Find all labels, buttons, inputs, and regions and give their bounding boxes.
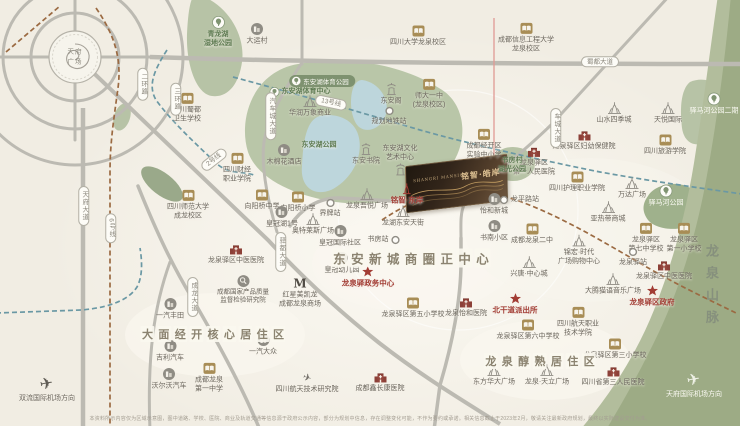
landmark-label: 龙泉驿政务中心 — [342, 279, 395, 289]
road-name-label: 天府大道 — [78, 186, 89, 226]
road-name-label: 三环路 — [170, 83, 181, 116]
landmark-tower-icon — [521, 255, 537, 268]
place-landmark: 吉利汽车 — [156, 339, 184, 362]
park-tree-icon — [291, 76, 301, 86]
landmark-tower-icon — [605, 272, 621, 285]
school-icon — [292, 191, 305, 203]
landmark-label: 铭智·东岸 — [391, 196, 424, 206]
plaza-landmark: 龙湖东安天街 — [382, 204, 424, 227]
landmark-label: 四川财经职业学院 — [223, 165, 251, 183]
hospital-landmark: 龙泉驿区中医医院 — [208, 243, 264, 265]
landmark-tower-icon — [600, 200, 616, 213]
landmark-label: 成都信息工程大学龙泉校区 — [498, 35, 554, 53]
landmark-label: 万达广场 — [618, 190, 646, 199]
plaza-landmark: 大腾猫语音乐广场 — [585, 272, 641, 295]
park-tree-icon — [708, 92, 721, 105]
landmark-label: 天悦国际 — [654, 115, 682, 124]
road-name-label: 车城大道 — [550, 108, 561, 148]
landmark-layer: 四川大学龙泉校区成都信息工程大学龙泉校区师大一中(龙泉校区)四川蜀都卫生学校四川… — [0, 0, 740, 426]
landmark-label: 师大一中(龙泉校区) — [413, 91, 446, 109]
pagoda-icon — [393, 163, 407, 176]
landmark-label: 四川航天职业技术学院 — [557, 319, 599, 337]
metro-station-landmark: 龙泉驿站 — [619, 247, 647, 267]
landmark-tower-icon — [395, 204, 411, 217]
landmark-label: 四川旅游学院 — [644, 147, 686, 156]
landmark-label: 东安书院 — [352, 156, 380, 165]
landmark-label: 龙泉驿区中医医院 — [208, 256, 264, 265]
school-icon — [412, 25, 425, 37]
landmark-label: 大运村 — [247, 36, 268, 45]
metro-station-landmark: 规划地铁站 — [372, 106, 407, 126]
pavilion-landmark: 东安书院 — [352, 142, 380, 165]
landmark-label: 一汽大众 — [249, 347, 277, 356]
school-icon — [678, 222, 691, 234]
landmark-label: 皇冠国际社区 — [319, 238, 361, 247]
m-icon: M — [293, 277, 306, 289]
plane-small-icon: ✈ — [301, 373, 312, 385]
park-tree-icon — [212, 16, 225, 29]
school-icon — [478, 128, 491, 140]
building-circle-icon — [251, 22, 264, 35]
building-circle-icon — [278, 143, 291, 156]
school-icon — [256, 189, 269, 201]
road-name-label: 二环路 — [137, 68, 148, 101]
building-circle-icon — [334, 224, 347, 237]
metro-station-icon — [628, 247, 638, 257]
landmark-label: 大腾猫语音乐广场 — [585, 286, 641, 295]
landmark-label: 龙泉怡和医院 — [445, 309, 487, 318]
plaza-landmark: 亚热带商城 — [591, 200, 626, 223]
landmark-label: 成都鑫长康医院 — [356, 384, 405, 393]
landmark-label: 驿马河公园 — [649, 198, 684, 207]
place-landmark: 大运村 — [247, 22, 268, 45]
landmark-label: 龙泉驿区第一小学校 — [667, 235, 702, 253]
location-map: SHANGRI MANSION 铭智·皓岸 四川大学龙泉校区成都信息工程大学龙泉… — [0, 0, 740, 426]
school-icon — [231, 152, 244, 164]
place-landmark: 书南小区 — [480, 219, 508, 242]
landmark-label: 龙泉驿区中医医院 — [636, 272, 692, 281]
landmark-label: 四川师范大学成龙校区 — [167, 202, 209, 220]
airport-landmark: ✈天府国际机场方向 — [666, 373, 722, 399]
landmark-label: 北干道派出所 — [493, 306, 538, 316]
park-pill-label: 东安湖体育公园 — [289, 75, 355, 87]
plaza-landmark: 天悦国际 — [654, 101, 682, 124]
landmark-tower-icon — [571, 234, 587, 247]
place-landmark: 木棉花酒店 — [267, 143, 302, 166]
plaza-landmark: 万达广场 — [618, 176, 646, 199]
road-name-label: 驿都大道 — [275, 232, 286, 272]
hospital-icon — [459, 296, 473, 308]
school-icon — [659, 134, 672, 146]
school-icon — [526, 223, 539, 235]
park-landmark: 驿马河公园二期 — [690, 92, 739, 115]
mall-landmark: M红星美凯龙成都龙泉商场 — [279, 277, 321, 308]
sports-park-landmark: 东安湖体育公园 — [289, 75, 355, 87]
place-landmark: 沃尔沃汽车 — [152, 367, 187, 390]
landmark-label: 一汽丰田 — [156, 311, 184, 320]
region-title: 大面经开核心居住区 — [139, 326, 286, 342]
park-landmark: 东安湖公园 — [302, 140, 337, 149]
pagoda-icon — [384, 82, 398, 95]
airport-landmark: ✈双流国际机场方向 — [19, 377, 75, 403]
landmark-label: 东方华大广场 — [473, 377, 515, 386]
landmark-label: 东安阁 — [381, 96, 402, 105]
metro-station-landmark: 界牌站 — [320, 198, 341, 218]
landmark-label: 红星美凯龙成都龙泉商场 — [279, 290, 321, 308]
landmark-label: 龙泉驿站 — [619, 258, 647, 267]
metro-station-landmark: 书房站 — [368, 235, 401, 245]
landmark-label: 锦宏·时代广场购物中心 — [558, 248, 600, 266]
landmark-tower-icon — [624, 176, 640, 189]
building-circle-icon — [276, 205, 289, 218]
metro-station-icon — [391, 235, 401, 245]
school-landmark: 四川师范大学成龙校区 — [167, 189, 209, 220]
landmark-label: 皇冠湖1号 — [266, 219, 298, 228]
project-block-landmark: 铭智·东岸 — [391, 183, 424, 206]
hospital-icon — [577, 129, 591, 141]
pagoda-icon — [359, 142, 373, 155]
institute-landmark: 成都国家产品质量监督检验研究院 — [217, 275, 269, 306]
road-name-label: 蜀都大道 — [581, 56, 619, 67]
school-landmark: 龙泉驿区第五小学校 — [382, 297, 445, 319]
metro-station-icon — [325, 198, 335, 208]
hospital-icon — [229, 243, 243, 255]
metro-station-landmark: 龙平路站 — [499, 195, 539, 205]
landmark-label: 成都龙泉第一中学 — [195, 375, 223, 393]
school-landmark: 成都龙泉第一中学 — [195, 362, 223, 393]
school-icon — [520, 22, 533, 34]
landmark-label: 四川护理职业学院 — [549, 184, 605, 193]
landmark-label: 龙泉驿区第六中学校 — [497, 332, 560, 341]
pavilion-landmark: 东安湖文化艺术中心 — [383, 144, 418, 176]
landmark-label: 木棉花酒店 — [267, 157, 302, 166]
building-circle-icon — [163, 367, 176, 380]
project-marker-icon — [401, 183, 413, 195]
landmark-label: 华润万象商业 — [289, 108, 331, 117]
landmark-label: 亚热带商城 — [591, 214, 626, 223]
landmark-label: 规划地铁站 — [372, 117, 407, 126]
road-name-label: 成龙大道 — [187, 277, 198, 317]
school-icon — [422, 78, 435, 90]
road-name-label: 汽车城大道 — [265, 92, 276, 140]
landmark-label: 龙泉驿区妇幼保健院 — [553, 142, 616, 151]
landmark-label: 书房站 — [368, 235, 389, 244]
school-landmark: 成都经开区实验中小学 — [467, 128, 502, 159]
landmark-label: 四川省第三人民医院 — [582, 378, 645, 387]
place-landmark: 皇冠湖1号 — [266, 205, 298, 228]
park-tree-icon — [660, 184, 673, 197]
landmark-tower-icon — [359, 187, 375, 200]
hospital-landmark: 成都鑫长康医院 — [356, 371, 405, 393]
school-landmark: 四川旅游学院 — [644, 134, 686, 156]
pavilion-landmark: 东安阁 — [381, 82, 402, 105]
landmark-label: 书南小区 — [480, 233, 508, 242]
landmark-label: 成都国家产品质量监督检验研究院 — [217, 289, 269, 306]
plaza-landmark: 山水四季城 — [597, 101, 632, 124]
metro-station-icon — [384, 106, 394, 116]
plane-icon: ✈ — [39, 376, 55, 394]
school-icon — [572, 306, 585, 318]
school-icon — [203, 362, 216, 374]
landmark-label: 龙泉驿区政府 — [630, 298, 675, 308]
region-title: 东安新城商圈正中心 — [330, 249, 491, 268]
landmark-label: 成都龙泉二中 — [511, 236, 553, 245]
landmark-label: 兴唐·中心城 — [510, 269, 547, 278]
landmark-label: 山水四季城 — [597, 115, 632, 124]
park-landmark: 驿马河公园 — [649, 184, 684, 207]
landmark-label: 龙泉·天立广场 — [525, 377, 569, 386]
landmark-label: 龙湖东安天街 — [382, 218, 424, 227]
landmark-label: 成都经开区实验中小学 — [467, 141, 502, 159]
building-circle-icon — [164, 297, 177, 310]
school-icon — [571, 171, 584, 183]
school-icon — [407, 297, 420, 309]
hospital-landmark: 龙泉驿区妇幼保健院 — [553, 129, 616, 151]
plaza-landmark: 锦宏·时代广场购物中心 — [558, 234, 600, 266]
landmark-label: 四川航天技术研究院 — [276, 385, 339, 394]
school-icon — [522, 319, 535, 331]
landmark-label: 东安湖公园 — [302, 140, 337, 149]
landmark-label: 双流国际机场方向 — [19, 394, 75, 403]
hospital-landmark: 龙泉怡和医院 — [445, 296, 487, 318]
school-landmark: 师大一中(龙泉校区) — [413, 78, 446, 109]
park-landmark: 书房村湖光公园 — [498, 156, 526, 174]
school-landmark: 四川大学龙泉校区 — [390, 25, 446, 47]
landmark-label: 怡和新城 — [480, 206, 508, 215]
place-landmark: 一汽丰田 — [156, 297, 184, 320]
landmark-label: 青龙湖湿地公园 — [204, 30, 232, 48]
metro-station-icon — [499, 195, 509, 205]
landmark-label: 界牌站 — [320, 209, 341, 218]
region-title: 龙泉醇熟居住区 — [483, 353, 598, 369]
landmark-tower-icon — [606, 101, 622, 114]
building-circle-icon — [488, 219, 501, 232]
landmark-label: 东安湖文化艺术中心 — [383, 144, 418, 162]
hospital-icon — [606, 365, 620, 377]
plaza-landmark: 兴唐·中心城 — [510, 255, 547, 278]
landmark-label: 沃尔沃汽车 — [152, 381, 187, 390]
plane-light-icon: ✈ — [686, 372, 702, 390]
landmark-label: 龙泉驿区第五小学校 — [382, 310, 445, 319]
hospital-icon — [527, 145, 541, 157]
star-icon — [646, 285, 658, 297]
institute-landmark: ✈四川航天技术研究院 — [276, 374, 339, 394]
magnifier-icon — [237, 275, 250, 288]
school-icon — [640, 222, 653, 234]
hospital-icon — [657, 259, 671, 271]
school-icon — [182, 189, 195, 201]
landmark-label: 龙平路站 — [511, 195, 539, 204]
school-landmark: 成都龙泉二中 — [511, 223, 553, 245]
school-landmark: 四川护理职业学院 — [549, 171, 605, 193]
hospital-icon — [373, 371, 387, 383]
map-disclaimer: 本资料所示内容仅为区域示意图，图中道路、学校、医院、商业及轨道交通等信息源于政府… — [90, 415, 651, 422]
star-icon — [509, 293, 521, 305]
park-landmark: 青龙湖湿地公园 — [204, 16, 232, 48]
landmark-label: 四川大学龙泉校区 — [390, 38, 446, 47]
school-icon — [609, 338, 622, 350]
landmark-label: 驿马河公园二期 — [690, 106, 739, 115]
school-landmark: 龙泉驿区第六中学校 — [497, 319, 560, 341]
school-landmark: 四川财经职业学院 — [223, 152, 251, 183]
landmark-label: 吉利汽车 — [156, 353, 184, 362]
landmark-label: 书房村湖光公园 — [498, 156, 526, 174]
landmark-tower-icon — [660, 101, 676, 114]
metro-line-label: 6号线 — [105, 213, 116, 243]
place-landmark: 皇冠国际社区 — [319, 224, 361, 247]
government-star-landmark: 北干道派出所 — [493, 293, 538, 316]
school-landmark: 龙泉驿区第一小学校 — [667, 222, 702, 253]
school-landmark: 成都信息工程大学龙泉校区 — [498, 22, 554, 53]
landmark-label: 天府国际机场方向 — [666, 390, 722, 399]
school-landmark: 四川航天职业技术学院 — [557, 306, 599, 337]
school-icon — [181, 92, 194, 104]
